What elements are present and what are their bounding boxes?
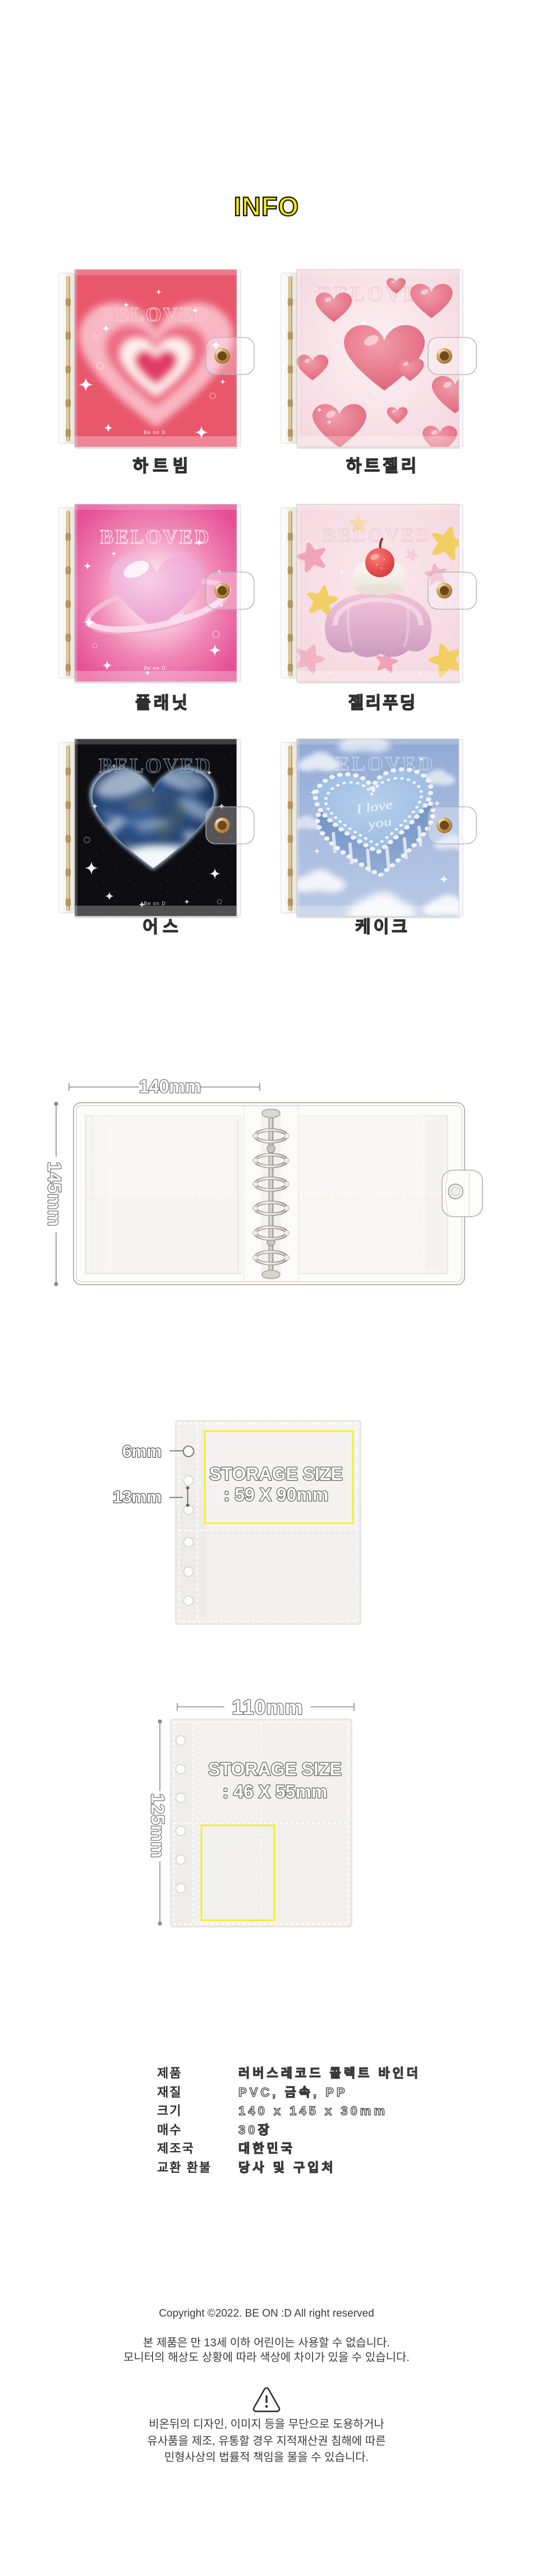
svg-text:110mm: 110mm <box>232 1696 303 1719</box>
svg-text:13mm: 13mm <box>113 1488 162 1506</box>
svg-text:145mm: 145mm <box>44 1162 65 1226</box>
svg-text:Be on D: Be on D <box>144 901 166 906</box>
svg-text:125mm: 125mm <box>148 1793 168 1858</box>
svg-text:BELOVED: BELOVED <box>100 303 210 326</box>
svg-text:Be on D: Be on D <box>144 665 166 671</box>
svg-text:140mm: 140mm <box>139 1076 201 1097</box>
svg-text:STORAGE SIZE: STORAGE SIZE <box>208 1759 342 1779</box>
svg-text:: 59 X 90mm: : 59 X 90mm <box>224 1485 329 1505</box>
svg-text:: 46 X 55mm: : 46 X 55mm <box>223 1782 328 1802</box>
svg-text:BELOVED: BELOVED <box>323 525 432 546</box>
svg-text:BELOVED: BELOVED <box>100 526 210 548</box>
svg-text:STORAGE SIZE: STORAGE SIZE <box>209 1464 343 1484</box>
svg-text:Be on D: Be on D <box>366 901 388 906</box>
svg-text:6mm: 6mm <box>122 1442 162 1461</box>
svg-text:BELOVED: BELOVED <box>99 755 212 778</box>
svg-text:Be on D: Be on D <box>144 430 166 435</box>
